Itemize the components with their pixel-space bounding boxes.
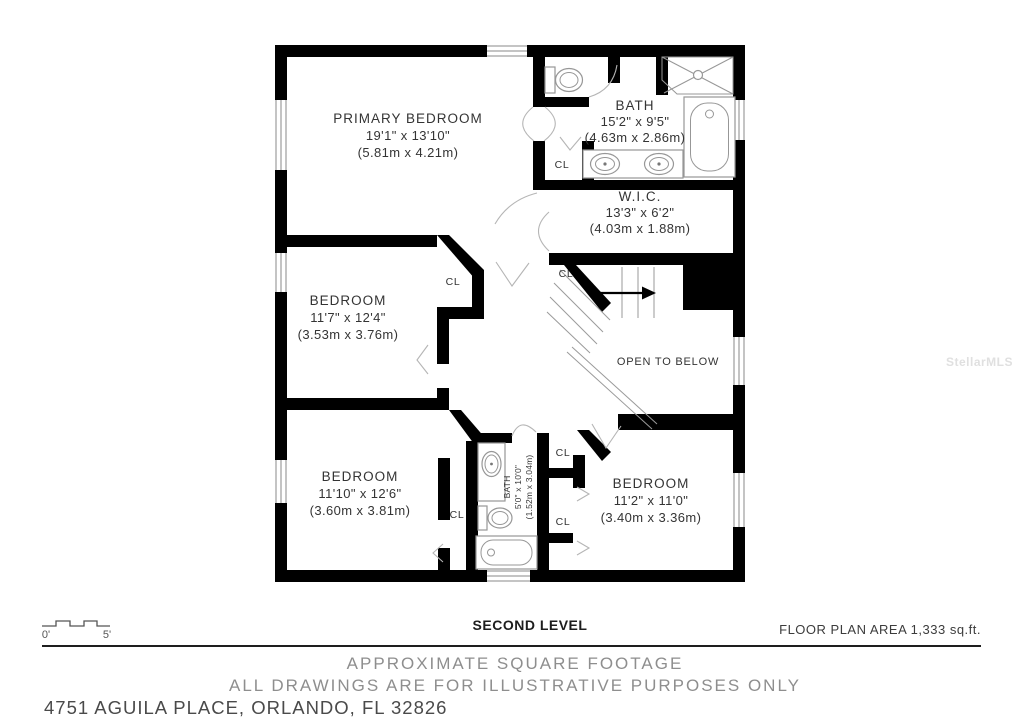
room-metric-bedroom-mid: (3.53m x 3.76m)	[298, 327, 399, 342]
door-swing	[496, 262, 529, 286]
wall	[437, 319, 449, 364]
door-swing	[495, 193, 537, 224]
wall	[437, 307, 484, 319]
closet-label: CL	[559, 268, 574, 280]
door-swing	[512, 425, 536, 436]
wall	[537, 433, 549, 570]
toilet-icon	[478, 506, 512, 530]
floorplan-canvas: PRIMARY BEDROOM 19'1" x 13'10" (5.81m x …	[0, 0, 1023, 723]
room-dims-bedroom-bl: 11'10" x 12'6"	[318, 486, 401, 501]
room-metric-wic: (4.03m x 1.88m)	[590, 221, 691, 236]
disclaimer-line2: ALL DRAWINGS ARE FOR ILLUSTRATIVE PURPOS…	[229, 676, 801, 695]
property-address: 4751 AGUILA PLACE, ORLANDO, FL 32826	[44, 697, 447, 718]
room-label-open-to-below: OPEN TO BELOW	[617, 356, 719, 368]
scale-bar	[42, 621, 110, 626]
floor-plan-area-label: FLOOR PLAN AREA 1,333 sq.ft.	[779, 622, 981, 637]
stairs	[547, 267, 657, 429]
stellar-mls-watermark: StellarMLS	[946, 355, 1013, 369]
room-label-bath-main: BATH	[615, 98, 654, 113]
wall-solid-block	[683, 253, 733, 310]
wall	[533, 141, 545, 183]
room-label-primary-bedroom: PRIMARY BEDROOM	[333, 111, 483, 126]
door-swing	[523, 107, 534, 141]
room-metric-bath-small: (1.52m x 3.04m)	[524, 455, 534, 520]
room-label-bedroom-mid: BEDROOM	[310, 293, 387, 308]
bathtub-icon	[684, 97, 735, 177]
room-metric-bedroom-bl: (3.60m x 3.81m)	[310, 503, 411, 518]
room-label-wic: W.I.C.	[619, 189, 662, 204]
toilet-icon	[545, 67, 583, 93]
room-dims-wic: 13'3" x 6'2"	[606, 205, 675, 220]
wall	[608, 57, 620, 83]
wall	[478, 433, 512, 443]
room-dims-bedroom-br: 11'2" x 11'0"	[614, 493, 689, 508]
door-swing	[577, 487, 589, 501]
room-metric-bath-main: (4.63m x 2.86m)	[585, 130, 686, 145]
door-swing	[544, 107, 555, 141]
sink-icon	[478, 443, 505, 501]
wall	[618, 414, 733, 430]
closet-label: CL	[450, 509, 465, 521]
door-swing	[560, 137, 581, 150]
stair-tread	[547, 312, 590, 353]
window	[275, 100, 287, 170]
level-title: SECOND LEVEL	[473, 617, 588, 633]
window	[487, 570, 530, 582]
window	[733, 337, 745, 385]
closet-label: CL	[556, 447, 571, 459]
room-metric-bedroom-br: (3.40m x 3.36m)	[601, 510, 702, 525]
wall	[438, 458, 450, 520]
wall	[275, 398, 449, 410]
room-dims-primary-bedroom: 19'1" x 13'10"	[366, 128, 450, 143]
wall	[549, 533, 573, 543]
wall	[573, 455, 585, 488]
door-swing	[417, 345, 428, 374]
shower-icon	[662, 57, 733, 94]
wall	[533, 97, 589, 107]
wall	[549, 253, 683, 265]
scale-end-label: 5'	[103, 629, 111, 641]
room-label-bath-small-name: BATH	[502, 476, 512, 499]
room-dims-bath-small: 5'0" x 10'0"	[513, 465, 523, 509]
bathtub-icon	[476, 536, 537, 569]
room-label-bedroom-bl: BEDROOM	[322, 469, 399, 484]
room-metric-primary-bedroom: (5.81m x 4.21m)	[358, 145, 459, 160]
door-swing	[539, 212, 550, 251]
window	[275, 253, 287, 292]
window	[487, 45, 527, 57]
room-label-bedroom-br: BEDROOM	[613, 476, 690, 491]
room-dims-bedroom-mid: 11'7" x 12'4"	[310, 310, 386, 325]
closet-label: CL	[556, 516, 571, 528]
floorplan-page: PRIMARY BEDROOM 19'1" x 13'10" (5.81m x …	[0, 0, 1023, 723]
scale-start-label: 0'	[42, 629, 50, 641]
disclaimer-line1: APPROXIMATE SQUARE FOOTAGE	[347, 654, 684, 673]
closet-label: CL	[446, 276, 461, 288]
room-dims-bath-main: 15'2" x 9'5"	[601, 114, 670, 129]
wall	[275, 235, 437, 247]
window	[733, 473, 745, 527]
door-swing	[577, 541, 589, 555]
window	[275, 460, 287, 503]
footer: 0' 5' SECOND LEVEL FLOOR PLAN AREA 1,333…	[42, 617, 981, 718]
closet-label: CL	[555, 159, 570, 171]
double-vanity-icon	[583, 150, 683, 178]
wall	[549, 468, 573, 478]
